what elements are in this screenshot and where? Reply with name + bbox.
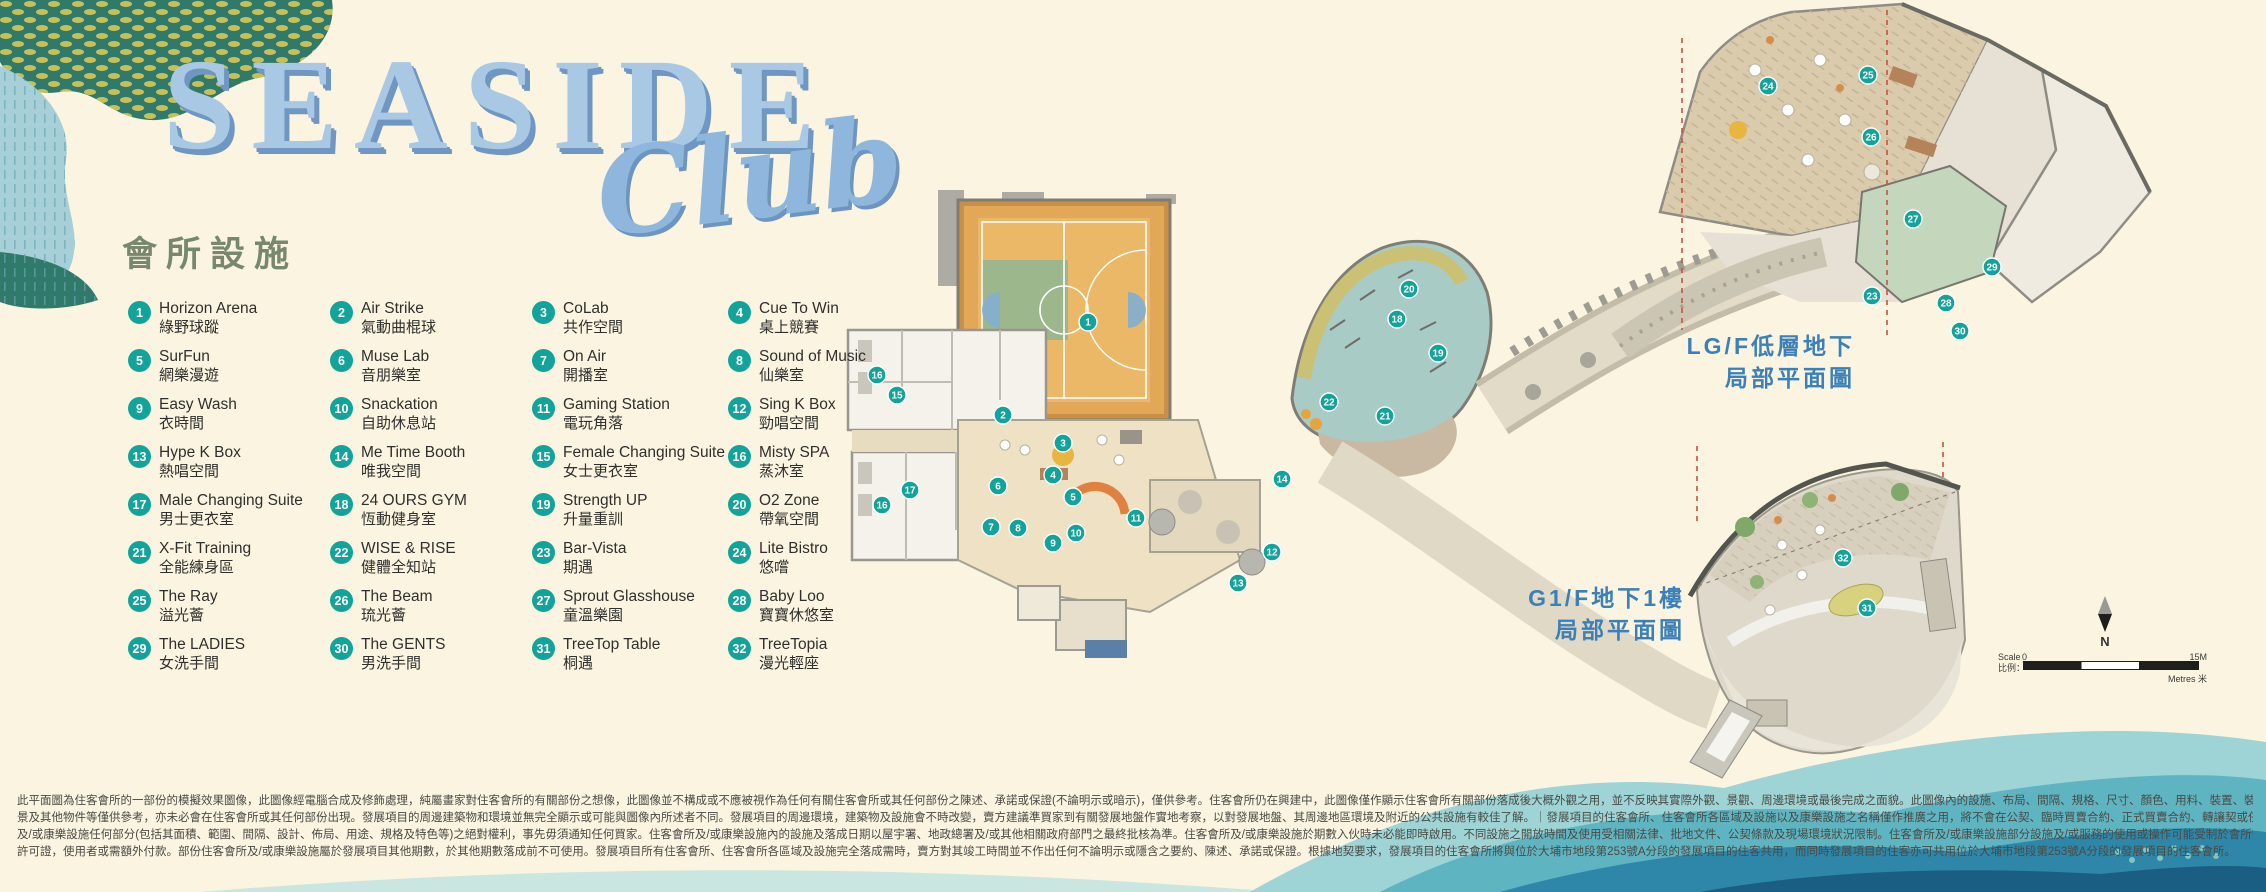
floor-label-g1f-line2: 局部平面圖 [1528,614,1685,646]
legend-item: 29The LADIES女洗手間 [128,636,330,684]
legend-name-en: Baby Loo [759,588,834,607]
plan-marker-number: 14 [1276,475,1288,486]
legend-name-en: Misty SPA [759,444,829,463]
legend-name-en: Horizon Arena [159,300,257,319]
plan-marker-number: 25 [1862,71,1874,82]
legend-name-en: On Air [563,348,608,367]
plan-marker-number: 29 [1986,263,1998,274]
legend-name-en: Female Changing Suite [563,444,725,463]
legend-name-zh: 蒸沐室 [759,463,829,481]
legend-item: 24Lite Bistro悠嚐 [728,540,918,588]
legend-number-badge: 20 [728,493,751,516]
legend-item: 21X-Fit Training全能練身區 [128,540,330,588]
disclaimer-line: 許可證，使用者或需額外付款。部份住客會所及/或康樂設施屬於發展項目其他期數，於其… [17,844,2253,861]
legend-name-en: Male Changing Suite [159,492,303,511]
legend-name-en: Bar-Vista [563,540,626,559]
legend-name-en: TreeTop Table [563,636,660,655]
legend-number-badge: 17 [128,493,151,516]
legend-name-zh: 溢光薈 [159,607,218,625]
legend-item: 27Sprout Glasshouse童溫樂園 [532,588,728,636]
legend-name-zh: 漫光輕座 [759,655,827,673]
legend-name-en: Cue To Win [759,300,839,319]
legend-name-zh: 共作空間 [563,319,623,337]
legend-name-zh: 帶氧空間 [759,511,819,529]
floor-label-g1f-line1: G1/F地下1樓 [1528,582,1685,614]
legend-name-en: Lite Bistro [759,540,828,559]
legend-number-badge: 24 [728,541,751,564]
legend-name-en: Sing K Box [759,396,836,415]
compass: N [2090,596,2120,649]
legend-name-zh: 桐遇 [563,655,660,673]
legend-number-badge: 28 [728,589,751,612]
plan-marker-number: 1 [1085,318,1091,329]
legend-number-badge: 12 [728,397,751,420]
plan-marker-number: 5 [1070,493,1076,504]
legend-name-zh: 自助休息站 [361,415,438,433]
legend-name-en: Sprout Glasshouse [563,588,695,607]
legend-item: 1Horizon Arena綠野球蹤 [128,300,330,348]
legend-name-zh: 唯我空間 [361,463,465,481]
legend-name-zh: 寶寶休悠室 [759,607,834,625]
legend-item: 23Bar-Vista期遇 [532,540,728,588]
legend-item: 9Easy Wash衣時間 [128,396,330,444]
plan-marker-number: 2 [1000,411,1006,422]
plan-marker-number: 31 [1861,604,1873,615]
legend-item: 8Sound of Music仙樂室 [728,348,918,396]
scale-bar-graphic [2023,661,2199,670]
disclaimer: 此平面圖為住客會所的一部份的模擬效果圖像，此圖像經電腦合成及修飾處理，純屬畫家對… [17,793,2253,861]
legend-name-zh: 音朋樂室 [361,367,429,385]
plan-marker-number: 12 [1266,548,1278,559]
legend-item: 30The GENTS男洗手間 [330,636,532,684]
legend-name-en: The Beam [361,588,433,607]
north-label: N [2090,634,2120,649]
legend-item: 19Strength UP升量重訓 [532,492,728,540]
plan-marker-number: 24 [1762,82,1774,93]
legend-name-zh: 開播室 [563,367,608,385]
legend-number-badge: 11 [532,397,555,420]
lgf-floor-plan [1620,4,2150,346]
plan-marker-number: 4 [1050,471,1056,482]
plan-marker-number: 18 [1391,315,1403,326]
plan-marker-number: 23 [1866,292,1878,303]
legend-name-zh: 電玩角落 [563,415,670,433]
legend-number-badge: 4 [728,301,751,324]
legend-item: 15Female Changing Suite女士更衣室 [532,444,728,492]
legend-name-zh: 女洗手間 [159,655,245,673]
legend-item: 32TreeTopia漫光輕座 [728,636,918,684]
plan-marker-number: 19 [1432,349,1444,360]
legend-item: 7On Air開播室 [532,348,728,396]
plan-marker-number: 28 [1940,299,1952,310]
legend-item: 5SurFun網樂漫遊 [128,348,330,396]
legend-name-zh: 全能練身區 [159,559,251,577]
legend-name-zh: 悠嚐 [759,559,828,577]
plan-marker-number: 30 [1954,327,1966,338]
plan-marker-number: 9 [1050,539,1056,550]
legend-name-en: X-Fit Training [159,540,251,559]
lounge-area [958,420,1265,658]
legend-name-en: Easy Wash [159,396,237,415]
legend-name-en: Gaming Station [563,396,670,415]
legend-item: 26The Beam琉光薈 [330,588,532,636]
legend-number-badge: 19 [532,493,555,516]
compass-needle-icon [2098,596,2112,614]
legend-name-zh: 期遇 [563,559,626,577]
plan-marker-number: 6 [995,482,1001,493]
plan-marker-number: 26 [1865,133,1877,144]
gym-wing [1292,241,1491,476]
legend-item: 6Muse Lab音朋樂室 [330,348,532,396]
legend-name-zh: 升量重訓 [563,511,647,529]
legend-item: 12Sing K Box勁唱空間 [728,396,918,444]
plan-marker-number: 13 [1232,579,1244,590]
legend-name-en: Muse Lab [361,348,429,367]
floor-label-lgf-line1: LG/F低層地下 [1687,330,1855,362]
legend-number-badge: 25 [128,589,151,612]
legend-item: 22WISE & RISE健體全知站 [330,540,532,588]
legend-name-zh: 男士更衣室 [159,511,303,529]
legend-number-badge: 13 [128,445,151,468]
legend-number-badge: 7 [532,349,555,372]
legend-number-badge: 32 [728,637,751,660]
compass-needle-icon [2098,614,2112,632]
legend-item: 11Gaming Station電玩角落 [532,396,728,444]
legend-name-zh: 仙樂室 [759,367,866,385]
legend-name-en: WISE & RISE [361,540,456,559]
legend-name-en: Me Time Booth [361,444,465,463]
plan-marker-number: 21 [1379,412,1391,423]
legend-item: 28Baby Loo寶寶休悠室 [728,588,918,636]
legend-name-zh: 女士更衣室 [563,463,725,481]
legend-number-badge: 27 [532,589,555,612]
legend-number-badge: 1 [128,301,151,324]
legend-number-badge: 8 [728,349,751,372]
brochure-page: 1234567891011121314151616171819202122 23… [0,0,2266,892]
legend-number-badge: 22 [330,541,353,564]
legend-item: 13Hype K Box熱唱空間 [128,444,330,492]
legend-number-badge: 14 [330,445,353,468]
legend-number-badge: 23 [532,541,555,564]
legend-name-en: Hype K Box [159,444,241,463]
legend-item: 17Male Changing Suite男士更衣室 [128,492,330,540]
legend-name-en: 24 OURS GYM [361,492,467,511]
floor-label-lgf: LG/F低層地下 局部平面圖 [1687,330,1855,394]
legend-name-en: Sound of Music [759,348,866,367]
legend-name-zh: 琉光薈 [361,607,433,625]
plan-marker-number: 20 [1403,285,1415,296]
plan-marker-number: 7 [988,523,994,534]
legend-number-badge: 15 [532,445,555,468]
g1f-floor-plan [1690,442,1965,778]
legend-item: 2Air Strike氣動曲棍球 [330,300,532,348]
legend-item: 10Snackation自助休息站 [330,396,532,444]
disclaimer-line: 景及其他物件等僅供參考，亦未必會在住客會所或其任何部份出現。發展項目的周邊建築物… [17,810,2253,827]
legend-name-zh: 衣時間 [159,415,237,433]
legend-number-badge: 5 [128,349,151,372]
disclaimer-line: 此平面圖為住客會所的一部份的模擬效果圖像，此圖像經電腦合成及修飾處理，純屬畫家對… [17,793,2253,810]
legend-item: 1824 OURS GYM恆動健身室 [330,492,532,540]
legend-name-zh: 男洗手間 [361,655,445,673]
legend: 1Horizon Arena綠野球蹤2Air Strike氣動曲棍球3CoLab… [128,300,918,684]
plan-marker-number: 3 [1060,439,1066,450]
legend-item: 31TreeTop Table桐遇 [532,636,728,684]
legend-number-badge: 10 [330,397,353,420]
legend-name-en: Strength UP [563,492,647,511]
legend-number-badge: 3 [532,301,555,324]
scale-label-zh: 比例： [1998,661,2025,674]
legend-item: 14Me Time Booth唯我空間 [330,444,532,492]
legend-number-badge: 31 [532,637,555,660]
plan-marker-number: 32 [1837,554,1849,565]
floor-label-g1f: G1/F地下1樓 局部平面圖 [1528,582,1685,646]
legend-name-zh: 童溫樂園 [563,607,695,625]
legend-number-badge: 16 [728,445,751,468]
scale-bar: Scale 比例： 0 15M Metres 米 [1995,648,2210,682]
legend-number-badge: 18 [330,493,353,516]
disclaimer-line: 及/或康樂設施任何部分(包括其面積、範圍、間隔、設計、佈局、用途、規格及特色等)… [17,827,2253,844]
legend-name-zh: 恆動健身室 [361,511,467,529]
legend-number-badge: 26 [330,589,353,612]
logo-club-script: Club [590,100,909,255]
scale-unit: Metres 米 [2168,672,2207,685]
legend-number-badge: 29 [128,637,151,660]
legend-number-badge: 21 [128,541,151,564]
legend-number-badge: 30 [330,637,353,660]
legend-item: 25The Ray溢光薈 [128,588,330,636]
legend-item: 3CoLab共作空間 [532,300,728,348]
legend-name-en: CoLab [563,300,623,319]
legend-name-zh: 綠野球蹤 [159,319,257,337]
plan-marker-number: 10 [1070,529,1082,540]
page-subtitle: 會所設施 [122,226,298,277]
plan-marker-number: 27 [1907,215,1919,226]
legend-name-en: Snackation [361,396,438,415]
legend-name-zh: 熱唱空間 [159,463,241,481]
plan-marker-number: 11 [1131,514,1142,525]
legend-name-zh: 勁唱空間 [759,415,836,433]
legend-item: 4Cue To Win桌上競賽 [728,300,918,348]
floor-label-lgf-line2: 局部平面圖 [1687,362,1855,394]
legend-name-zh: 桌上競賽 [759,319,839,337]
legend-name-en: The GENTS [361,636,445,655]
plan-marker-number: 22 [1323,398,1335,409]
legend-name-zh: 健體全知站 [361,559,456,577]
legend-item: 20O2 Zone帶氧空間 [728,492,918,540]
legend-name-zh: 網樂漫遊 [159,367,219,385]
legend-name-en: Air Strike [361,300,436,319]
legend-number-badge: 2 [330,301,353,324]
legend-item: 16Misty SPA蒸沐室 [728,444,918,492]
legend-name-en: The Ray [159,588,218,607]
legend-name-en: The LADIES [159,636,245,655]
legend-name-en: SurFun [159,348,219,367]
legend-name-en: TreeTopia [759,636,827,655]
legend-name-zh: 氣動曲棍球 [361,319,436,337]
legend-number-badge: 9 [128,397,151,420]
legend-name-en: O2 Zone [759,492,819,511]
plan-marker-number: 8 [1015,524,1021,535]
legend-number-badge: 6 [330,349,353,372]
